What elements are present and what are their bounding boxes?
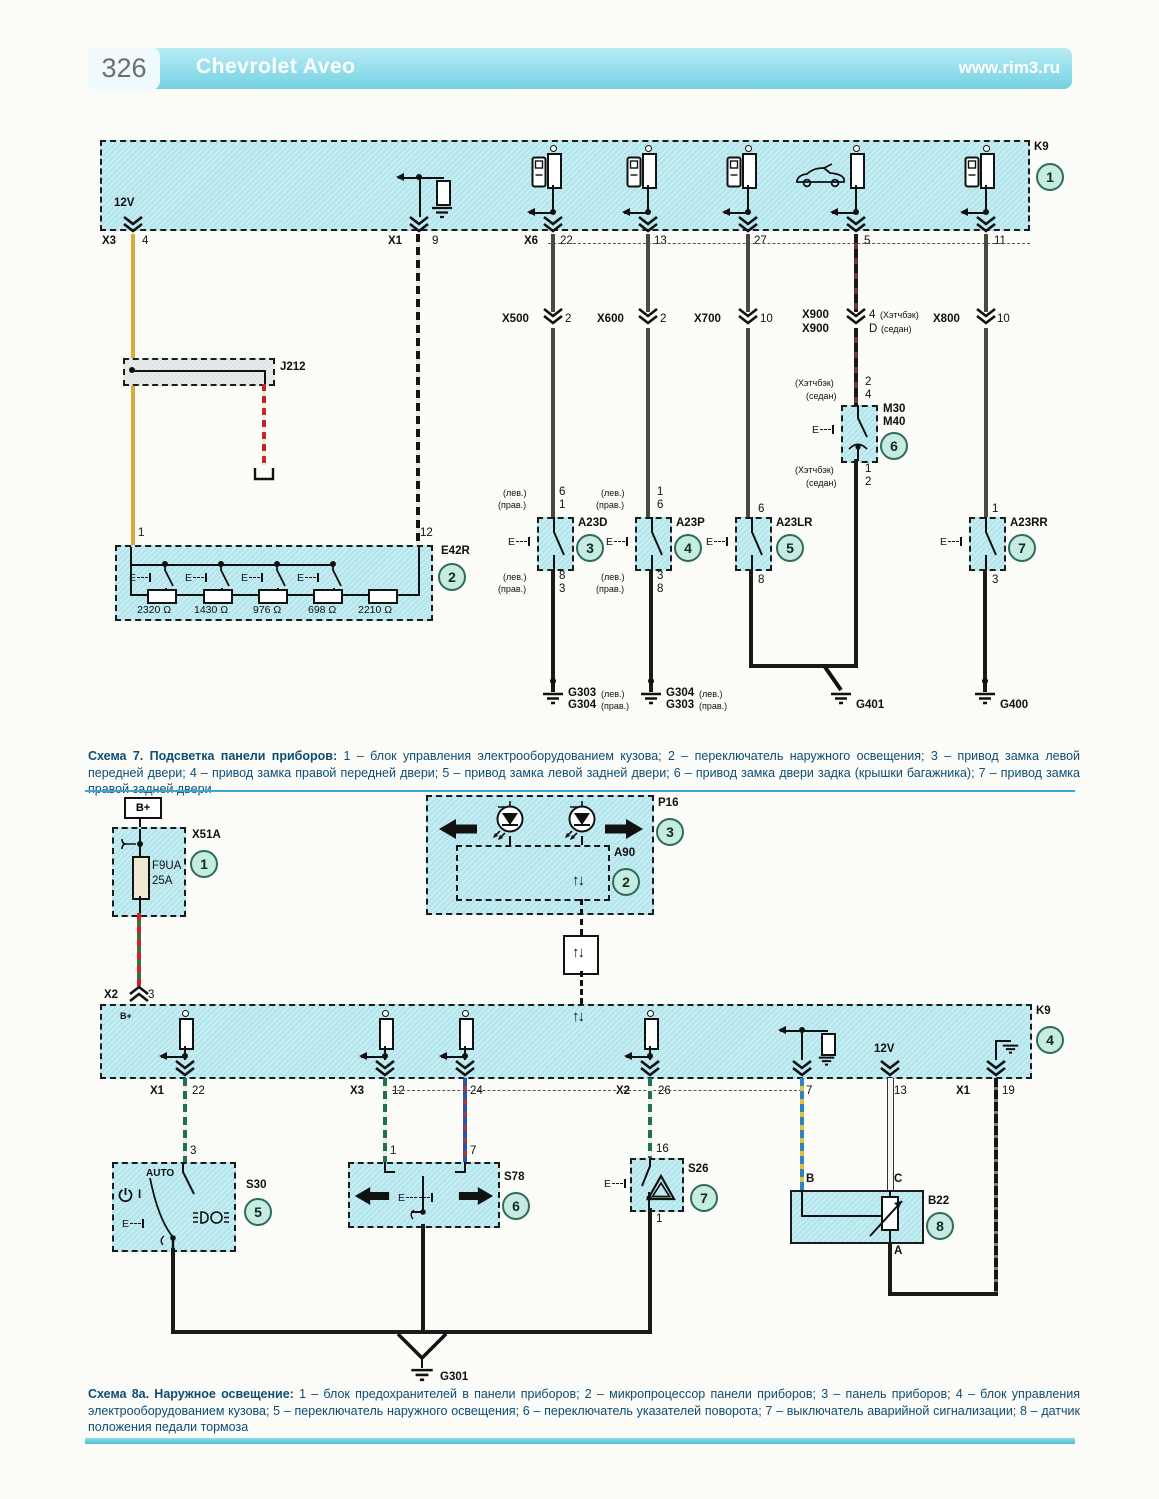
wire [888, 1242, 892, 1296]
ground-icon [410, 1368, 434, 1383]
pin-number: 4 [869, 310, 875, 322]
data-bus-arrows: ↑↓ [572, 944, 583, 961]
lamp-circle-icon [745, 145, 752, 152]
wire-bend [824, 666, 844, 692]
pin-number: 26 [658, 1086, 671, 1098]
pin-number: 1 [865, 464, 871, 476]
block-ref: X51A [192, 830, 221, 842]
connector-boundary [392, 1090, 802, 1091]
electronic-control-symbol: E [706, 536, 728, 547]
connector-chevron-icon [737, 308, 759, 326]
arrow-left-icon [956, 208, 968, 216]
fuse-ref: F9UA [152, 861, 181, 873]
resistance-value: 1430 Ω [194, 605, 228, 616]
wire [416, 234, 420, 545]
callout-8: 8 [926, 1212, 954, 1240]
open-connector-icon [253, 468, 275, 482]
side-note: (прав.) [601, 702, 629, 711]
connector-label: X900 [802, 310, 829, 322]
side-note: (лев.) [699, 690, 723, 699]
voltage-label: 12V [114, 198, 134, 210]
pin-number: 6 [559, 487, 565, 499]
resistor-icon [742, 153, 757, 189]
wire [983, 569, 987, 692]
junction-dot [745, 209, 751, 215]
arrow-left-icon [523, 208, 535, 216]
connector-chevron-icon [975, 216, 997, 234]
block-ref: A23P [676, 518, 705, 530]
pin-number: 7 [806, 1086, 812, 1098]
arrow-left-icon [826, 208, 838, 216]
wire [854, 234, 858, 312]
variant-note: (седан) [881, 325, 912, 334]
wire [383, 1078, 387, 1162]
block-ref: A23D [578, 518, 607, 530]
pin-number: 8 [559, 571, 565, 583]
pin-letter: B [806, 1174, 814, 1186]
ground-icon [818, 1056, 835, 1067]
door-lock-icon [964, 156, 980, 188]
wire [746, 328, 750, 517]
pin-number: 13 [654, 236, 667, 248]
branch-hook-icon [120, 838, 138, 850]
wire [984, 328, 988, 517]
junction-dot [129, 367, 135, 373]
variant-note: (седан) [806, 479, 837, 488]
variant-note: (седан) [806, 392, 837, 401]
pin-number: 3 [190, 1146, 196, 1158]
pin-number: 4 [142, 236, 148, 248]
resistor-icon [644, 1018, 659, 1050]
lamp-circle-icon [645, 145, 652, 152]
switch-contact-icon [841, 405, 875, 461]
connector-label: X800 [933, 314, 960, 326]
pin-letter: C [894, 1174, 902, 1186]
ground-icon [640, 692, 662, 706]
block-ref: M30 [883, 404, 905, 416]
block-ref: B22 [928, 1196, 949, 1208]
block-ref: E42R [441, 546, 470, 558]
arrow-left-icon [155, 1052, 167, 1060]
ground-icon [542, 692, 564, 706]
voltage-label: 12V [874, 1044, 894, 1056]
callout-5: 5 [244, 1198, 272, 1226]
junction-dot [647, 1053, 653, 1059]
side-note: (прав.) [596, 501, 624, 510]
pin-number: 3 [559, 584, 565, 596]
wire-segment [264, 370, 266, 384]
wire-segment [419, 177, 421, 217]
pin-number: 2 [865, 377, 871, 389]
side-note: (прав.) [498, 501, 526, 510]
wire [854, 328, 858, 405]
wire [648, 1208, 652, 1334]
resistor-icon [436, 180, 451, 206]
switch-contact-icon [112, 1162, 234, 1250]
lamp-circle-icon [382, 1010, 389, 1017]
pin-number: 1 [390, 1146, 396, 1158]
car-icon [794, 164, 848, 188]
wire-segment [418, 547, 420, 596]
connector-label: X6 [524, 236, 538, 248]
pin-number: 8 [758, 575, 764, 587]
callout-5: 5 [776, 534, 804, 562]
connector-chevron-icon [985, 1060, 1007, 1078]
connector-chevron-icon [122, 216, 144, 234]
connector-chevron-icon [374, 1060, 396, 1078]
battery-plus-box: B+ [124, 797, 162, 819]
wire-segment [581, 836, 583, 845]
connector-label: X1 [150, 1086, 164, 1098]
pin-number: 12 [420, 528, 433, 540]
arrow-left-icon [774, 1026, 786, 1034]
page-title: Chevrolet Aveo [196, 55, 356, 79]
door-lock-icon [531, 156, 547, 188]
wire [137, 913, 141, 986]
wire-segment [995, 1040, 1011, 1042]
wire-segment [139, 817, 141, 827]
ground-icon [830, 692, 852, 706]
pin-number: 2 [660, 314, 666, 326]
manual-page: 326 Chevrolet Aveo www.rim3.ru K9 1 12V [0, 0, 1159, 1499]
section-divider [85, 790, 1075, 792]
fuse-icon [132, 856, 150, 900]
pin-number: 11 [994, 236, 1006, 248]
switch-contact-icon [969, 517, 1003, 569]
arrow-left-icon [355, 1052, 367, 1060]
ground-ref: G303 [666, 700, 694, 712]
data-bus-wire [580, 971, 583, 1004]
junction-dot [983, 209, 989, 215]
footer-bar [85, 1438, 1075, 1444]
resistor-icon [258, 589, 288, 604]
connector-chevron-icon [639, 1060, 661, 1078]
pin-number: 12 [392, 1086, 405, 1098]
pin-number: 27 [754, 236, 767, 248]
resistance-value: 2320 Ω [137, 605, 171, 616]
lamp-circle-icon [853, 145, 860, 152]
callout-6: 6 [502, 1192, 530, 1220]
electronic-control-symbol: E [241, 572, 263, 583]
switch-contact-icon [348, 1162, 498, 1226]
pin-number: 5 [864, 236, 870, 248]
side-note: (лев.) [503, 489, 527, 498]
wire [984, 234, 988, 312]
connector-chevron-icon [737, 216, 759, 234]
switch-contact-icon [735, 517, 769, 569]
wire [551, 569, 555, 692]
junction-dot [550, 209, 556, 215]
connector-label: X500 [502, 314, 529, 326]
junction-dot [550, 678, 556, 684]
connector-label: X700 [694, 314, 721, 326]
bcm-block-k9 [100, 140, 1030, 231]
resistor-icon [980, 153, 995, 189]
callout-7: 7 [690, 1184, 718, 1212]
pin-number: D [869, 324, 877, 336]
pin-number: 1 [138, 528, 144, 540]
callout-3: 3 [656, 818, 684, 846]
door-lock-icon [626, 156, 642, 188]
wire-segment [509, 836, 511, 845]
turn-left-arrow-icon [438, 818, 478, 840]
resistor-icon [642, 153, 657, 189]
variant-note: (Хэтчбэк) [795, 379, 834, 388]
wire [648, 1078, 652, 1158]
connector-label: X1 [388, 236, 402, 248]
resistor-icon [179, 1018, 194, 1050]
wire-segment [139, 896, 141, 913]
ground-icon [431, 206, 453, 220]
wire [888, 1292, 998, 1296]
wire [183, 1078, 187, 1162]
ground-icon [1002, 1044, 1019, 1055]
microprocessor-a90 [456, 845, 610, 901]
side-note: (прав.) [596, 585, 624, 594]
block-ref: P16 [658, 798, 678, 810]
pin-number: 1 [657, 487, 663, 499]
side-note: (лев.) [503, 573, 527, 582]
side-note: (прав.) [498, 585, 526, 594]
arrow-left-icon [435, 1052, 447, 1060]
pin-number: 9 [432, 236, 438, 248]
block-ref: A23LR [776, 518, 812, 530]
wire [463, 1078, 467, 1162]
connector-chevron-icon [408, 216, 430, 234]
ground-ref: G401 [856, 700, 884, 712]
door-lock-icon [726, 156, 742, 188]
wire [551, 234, 555, 312]
callout-4: 4 [674, 534, 702, 562]
splice-j212-block [123, 358, 275, 386]
connector-label: X900 [802, 324, 829, 336]
pin-number: 3 [148, 990, 154, 1002]
callout-1: 1 [1036, 163, 1064, 191]
ground-ref: G304 [568, 700, 596, 712]
wire [171, 1248, 175, 1334]
pin-number: 22 [560, 236, 573, 248]
connector-chevron-icon [637, 308, 659, 326]
caption-title: Схема 8а. Наружное освещение: [88, 1387, 294, 1401]
resistor-icon [313, 589, 343, 604]
connector-label: X3 [350, 1086, 364, 1098]
lamp-circle-icon [182, 1010, 189, 1017]
lamp-circle-icon [550, 145, 557, 152]
connector-chevron-icon [845, 216, 867, 234]
pin-number: 1 [559, 500, 565, 512]
connector-chevron-icon [791, 1060, 813, 1078]
electronic-control-symbol: E [604, 1178, 626, 1189]
connector-chevron-icon [542, 308, 564, 326]
resistor-icon [203, 589, 233, 604]
data-bus-wire [580, 899, 583, 935]
electronic-control-symbol: E [129, 572, 151, 583]
ground-ref: G301 [440, 1372, 468, 1384]
callout-4: 4 [1036, 1026, 1064, 1054]
pin-number: 4 [865, 390, 871, 402]
pin-number: 19 [1002, 1086, 1015, 1098]
caption-title: Схема 7. Подсветка панели приборов: [88, 749, 337, 763]
junction-dot [462, 1053, 468, 1059]
pin-number: 8 [657, 584, 663, 596]
site-url: www.rim3.ru [910, 58, 1060, 78]
connector-chevron-icon [542, 216, 564, 234]
data-bus-arrows: ↑↓ [572, 872, 583, 889]
wire [421, 1224, 425, 1334]
callout-6: 6 [880, 432, 908, 460]
ground-ref: G303 [568, 688, 596, 700]
pin-number: 22 [192, 1086, 205, 1098]
resistance-value: 976 Ω [253, 605, 281, 616]
block-ref: K9 [1036, 1006, 1051, 1018]
pin-number: 13 [894, 1086, 907, 1098]
voltage-label: B+ [120, 1012, 132, 1021]
arrow-left-icon [620, 1052, 632, 1060]
wire [262, 384, 266, 466]
electronic-control-symbol: E [508, 536, 530, 547]
connector-chevron-icon [174, 1060, 196, 1078]
electronic-control-symbol: E [940, 536, 962, 547]
variant-note: (Хэтчбэк) [795, 466, 834, 475]
ground-ref: G304 [666, 688, 694, 700]
connector-chevron-icon [637, 216, 659, 234]
block-ref: M40 [883, 417, 905, 429]
callout-1: 1 [190, 850, 218, 878]
resistor-icon [547, 153, 562, 189]
pin-number: 24 [470, 1086, 483, 1098]
wire [646, 328, 650, 517]
resistor-icon [379, 1018, 394, 1050]
electronic-control-symbol: E [185, 572, 207, 583]
ground-ref: G400 [1000, 700, 1028, 712]
pin-number: 1 [992, 504, 998, 516]
pin-number: 1 [656, 1214, 662, 1226]
wire-segment [995, 1040, 997, 1060]
pin-number: 10 [997, 314, 1010, 326]
wire [887, 1078, 894, 1190]
callout-2: 2 [438, 563, 466, 591]
wire [551, 328, 555, 517]
connector-chevron-icon [845, 308, 867, 326]
fuse-rating: 25A [152, 876, 172, 888]
connector-chevron-icon [128, 984, 150, 1002]
connector-chevron-icon [975, 308, 997, 326]
wire [649, 569, 653, 692]
callout-3: 3 [576, 534, 604, 562]
pin-letter: A [894, 1246, 902, 1258]
resistor-icon [147, 589, 177, 604]
lamp-circle-icon [462, 1010, 469, 1017]
pin-number: 2 [865, 477, 871, 489]
side-note: (лев.) [601, 690, 625, 699]
electronic-control-symbol: E [606, 536, 628, 547]
connector-label: X600 [597, 314, 624, 326]
side-note: (лев.) [601, 489, 625, 498]
connector-label: X2 [104, 990, 118, 1002]
wire [800, 1078, 804, 1190]
arrow-left-icon [392, 173, 404, 181]
block-ref: K9 [1034, 142, 1049, 154]
page-number: 326 [88, 47, 160, 90]
resistor-icon [850, 153, 865, 189]
turn-right-arrow-icon [604, 818, 644, 840]
wire [131, 234, 135, 545]
callout-2: 2 [612, 868, 640, 896]
block-ref: S26 [688, 1164, 708, 1176]
variant-note: (Хэтчбэк) [880, 311, 919, 320]
switch-contact-icon [537, 517, 571, 569]
arrow-left-icon [718, 208, 730, 216]
pin-number: 7 [470, 1146, 476, 1158]
data-bus-arrows: ↑↓ [572, 1008, 583, 1025]
wire-segment [801, 1030, 803, 1060]
junction-dot [982, 678, 988, 684]
junction-dot [645, 209, 651, 215]
electronic-control-symbol: E [812, 424, 834, 435]
junction-dot [182, 1053, 188, 1059]
block-ref: S78 [504, 1172, 524, 1184]
wire [746, 234, 750, 312]
block-ref: J212 [280, 362, 306, 374]
wire [854, 459, 858, 666]
resistance-value: 698 Ω [308, 605, 336, 616]
connector-label: X3 [102, 236, 116, 248]
resistor-icon [821, 1033, 836, 1056]
pin-number: 3 [992, 575, 998, 587]
pin-number: 6 [657, 500, 663, 512]
connector-label: X1 [956, 1086, 970, 1098]
ground-icon [974, 692, 996, 706]
junction-dot [382, 1053, 388, 1059]
pin-number: 2 [565, 314, 571, 326]
resistor-icon [368, 589, 398, 604]
block-ref: S30 [246, 1180, 266, 1192]
wire-segment [421, 1356, 423, 1368]
callout-7: 7 [1008, 534, 1036, 562]
side-note: (прав.) [699, 702, 727, 711]
wire-segment [133, 370, 265, 372]
connector-chevron-icon [879, 1060, 901, 1078]
block-ref: A23RR [1010, 518, 1048, 530]
arrow-left-icon [618, 208, 630, 216]
block-ref: A90 [614, 848, 635, 860]
resistor-icon [459, 1018, 474, 1050]
resistance-value: 2210 Ω [358, 605, 392, 616]
side-note: (лев.) [601, 573, 625, 582]
pin-number: 3 [657, 571, 663, 583]
wire [646, 234, 650, 312]
scheme8-caption: Схема 8а. Наружное освещение: 1 – блок п… [88, 1386, 1080, 1436]
switch-contact-icon [635, 517, 669, 569]
connector-chevron-icon [454, 1060, 476, 1078]
potentiometer-icon [790, 1190, 922, 1242]
connector-boundary [548, 243, 1030, 244]
junction-dot [648, 678, 654, 684]
pin-number: 6 [758, 504, 764, 516]
pin-number: 10 [760, 314, 773, 326]
switch-contact-icon [630, 1158, 682, 1210]
pin-number: 16 [656, 1144, 669, 1156]
wire [994, 1078, 998, 1296]
lamp-circle-icon [647, 1010, 654, 1017]
wire [749, 569, 753, 668]
connector-label: X2 [616, 1086, 630, 1098]
electronic-control-symbol: E [297, 572, 319, 583]
junction-dot [853, 209, 859, 215]
lamp-circle-icon [983, 145, 990, 152]
